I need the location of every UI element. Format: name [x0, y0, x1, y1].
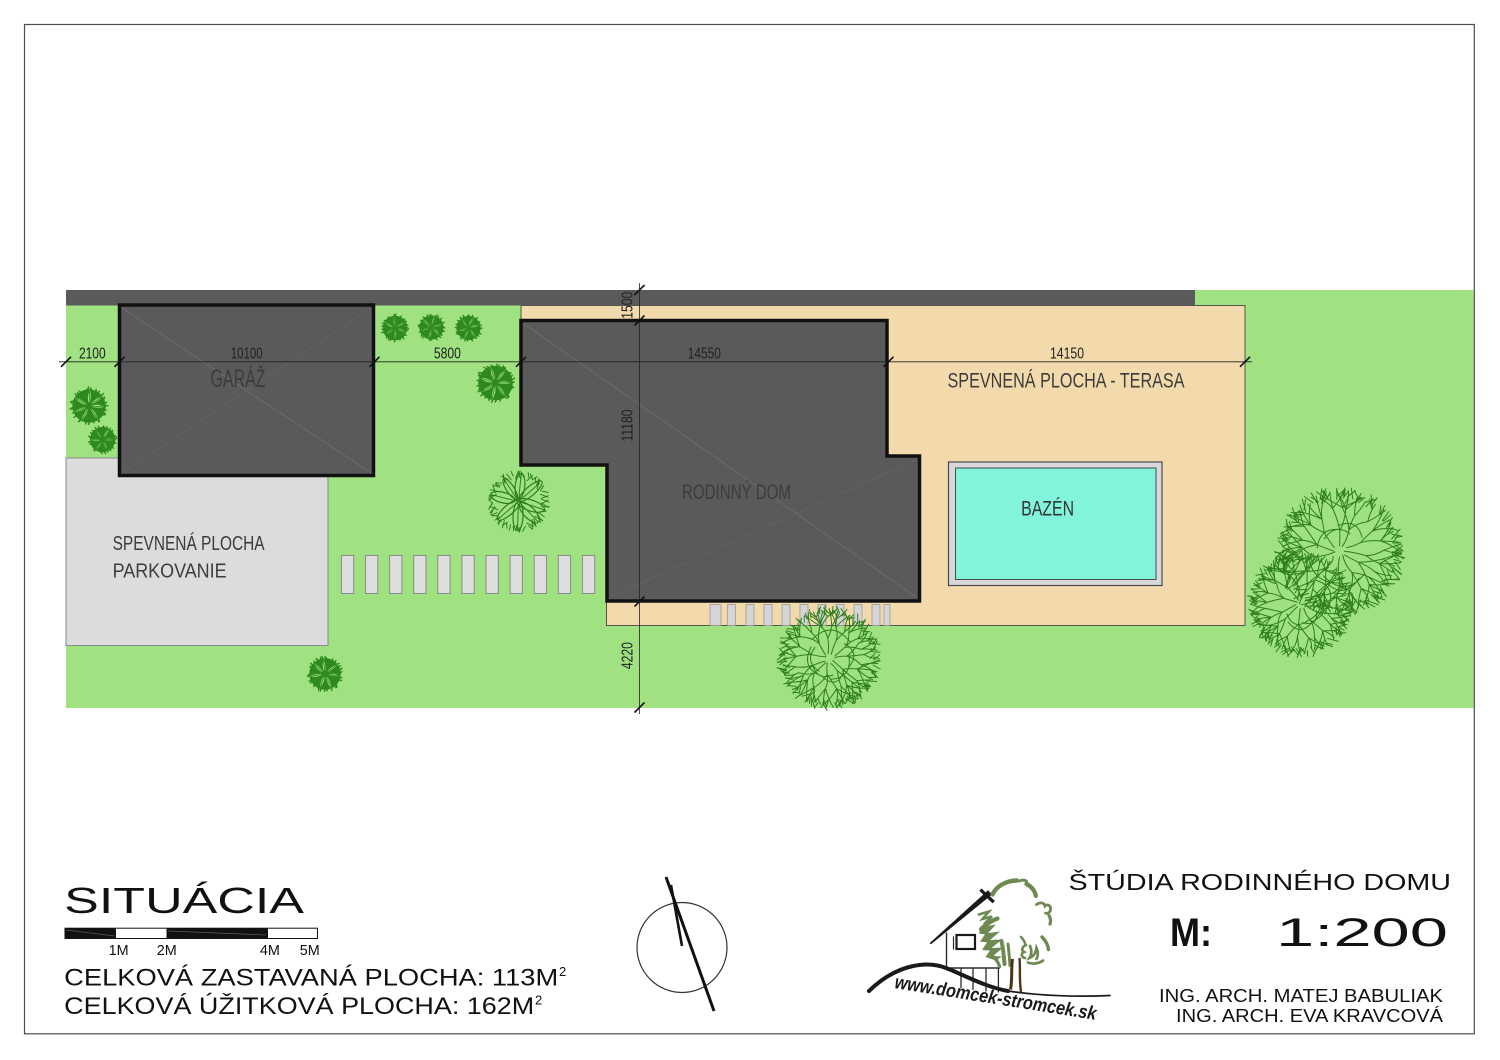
- svg-text:SITUÁCIA: SITUÁCIA: [64, 880, 305, 921]
- svg-text:5M: 5M: [300, 943, 320, 959]
- svg-text:SPEVNENÁ PLOCHA: SPEVNENÁ PLOCHA: [113, 532, 266, 555]
- svg-text:1500: 1500: [620, 292, 637, 319]
- svg-text:SPEVNENÁ PLOCHA - TERASA: SPEVNENÁ PLOCHA - TERASA: [948, 370, 1185, 393]
- svg-text:2: 2: [559, 964, 566, 979]
- svg-text:ING. ARCH. MATEJ BABULIAK: ING. ARCH. MATEJ BABULIAK: [1159, 986, 1443, 1006]
- svg-text:PARKOVANIE: PARKOVANIE: [113, 560, 227, 582]
- svg-text:ŠTÚDIA RODINNÉHO DOMU: ŠTÚDIA RODINNÉHO DOMU: [1069, 868, 1452, 895]
- svg-text:BAZÉN: BAZÉN: [1021, 498, 1074, 521]
- svg-text:2: 2: [535, 993, 542, 1008]
- svg-text:1M: 1M: [109, 943, 129, 959]
- svg-text:5800: 5800: [434, 346, 461, 363]
- svg-text:4220: 4220: [620, 642, 637, 669]
- svg-text:M:: M:: [1170, 911, 1212, 955]
- svg-text:2M: 2M: [157, 943, 177, 959]
- svg-text:14150: 14150: [1050, 346, 1084, 363]
- svg-text:GARÁŽ: GARÁŽ: [211, 364, 266, 393]
- svg-text:2100: 2100: [79, 346, 106, 363]
- svg-text:RODINNÝ DOM: RODINNÝ DOM: [682, 479, 791, 504]
- svg-text:4M: 4M: [260, 943, 280, 959]
- svg-text:1:200: 1:200: [1276, 911, 1448, 955]
- svg-text:14550: 14550: [688, 346, 721, 363]
- svg-text:ING. ARCH. EVA KRAVCOVÁ: ING. ARCH. EVA KRAVCOVÁ: [1176, 1006, 1443, 1026]
- svg-text:CELKOVÁ ÚŽITKOVÁ PLOCHA: 162M: CELKOVÁ ÚŽITKOVÁ PLOCHA: 162M: [64, 993, 534, 1020]
- svg-text:10100: 10100: [231, 346, 263, 363]
- svg-text:CELKOVÁ ZASTAVANÁ PLOCHA: 113M: CELKOVÁ ZASTAVANÁ PLOCHA: 113M: [64, 965, 558, 992]
- svg-text:11180: 11180: [620, 409, 637, 441]
